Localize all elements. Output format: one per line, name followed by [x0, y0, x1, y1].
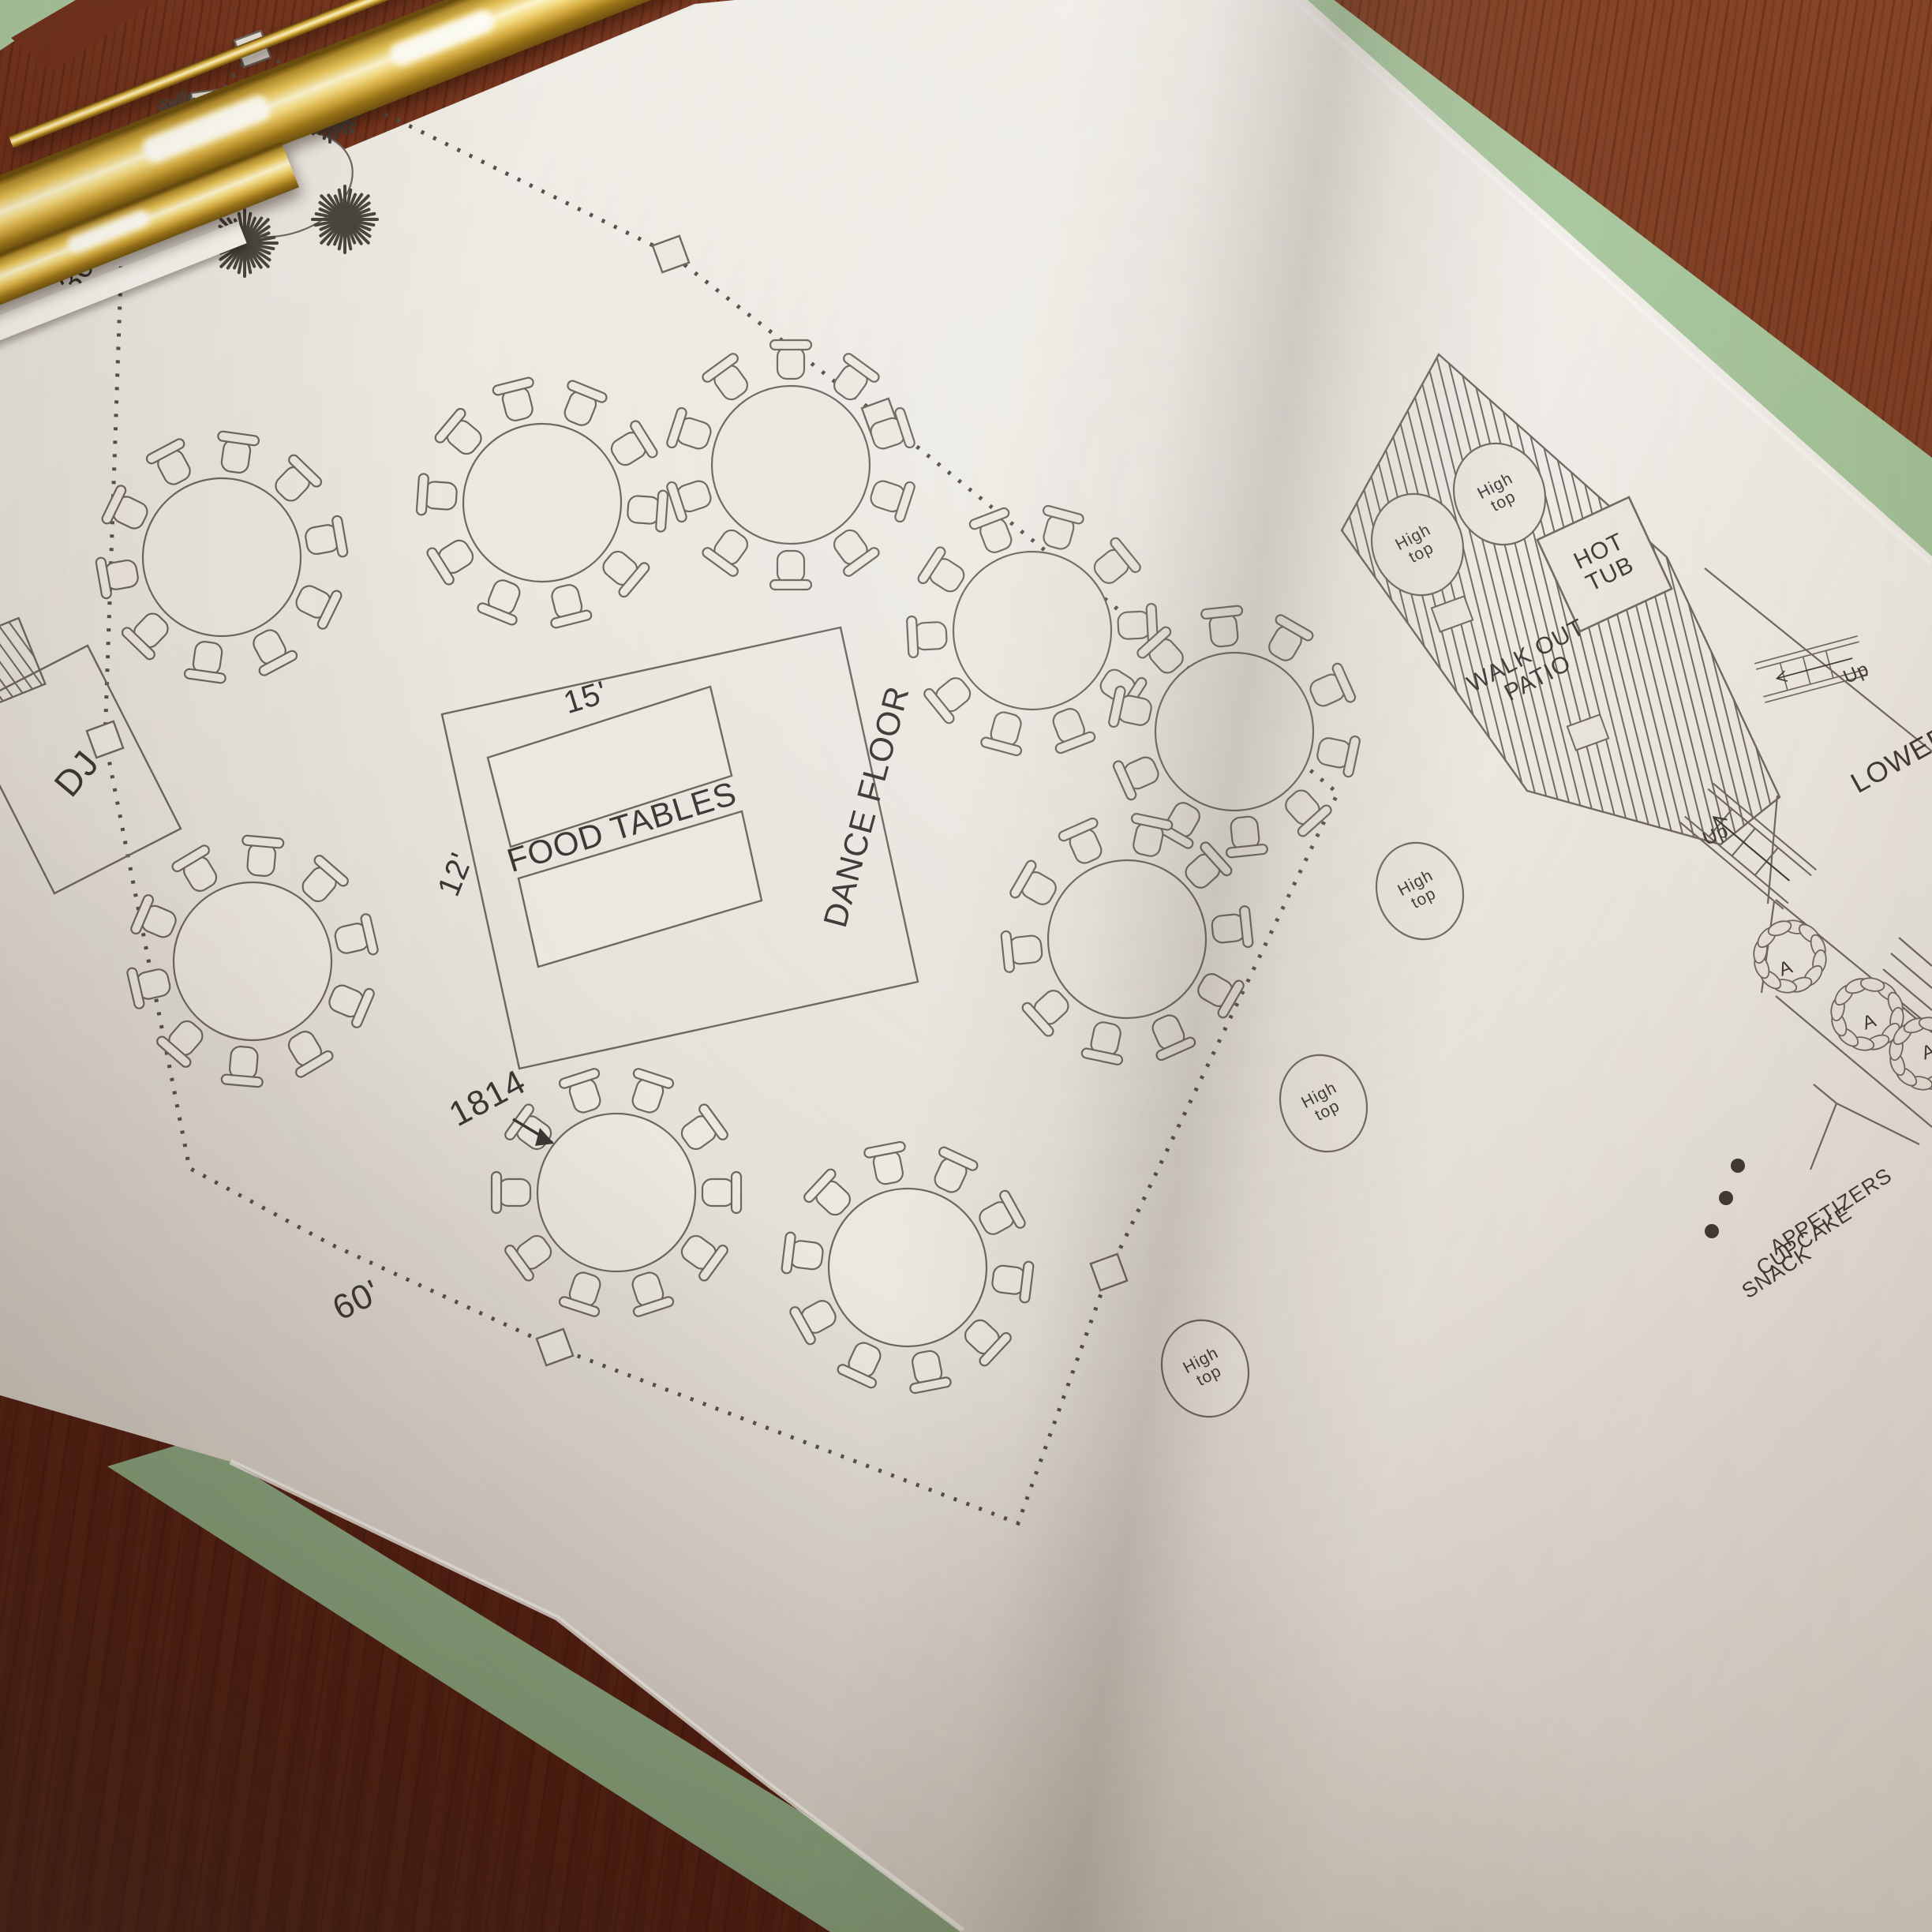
planter-1 [1747, 913, 1833, 1000]
round-table-5 [1064, 561, 1405, 902]
photo-canvas: 30' 60' 15' 12' FOOD TABLES DANCE FLOOR … [0, 0, 1932, 1932]
lower-level-walls [1705, 568, 1932, 1170]
clip-highlight-2 [388, 7, 496, 68]
round-table-3 [666, 340, 916, 590]
round-table-4 [879, 477, 1185, 783]
corner-post-7 [1091, 1254, 1127, 1290]
speaker-table [0, 618, 45, 705]
house-partial-table [1814, 1084, 1919, 1144]
walk-out-patio-deck [1342, 354, 1780, 844]
corner-post-5 [87, 721, 123, 758]
round-table-8 [979, 792, 1275, 1088]
corner-post-6 [537, 1329, 573, 1365]
round-table-2 [380, 340, 705, 665]
flower-starburst-4 [313, 186, 377, 253]
menu-bullets [1705, 1159, 1745, 1238]
round-table-1 [80, 417, 363, 698]
corner-post-2 [653, 236, 689, 272]
round-table-9 [742, 1102, 1073, 1433]
floor-plan-drawing [0, 0, 1932, 1932]
round-table-6 [118, 826, 388, 1096]
